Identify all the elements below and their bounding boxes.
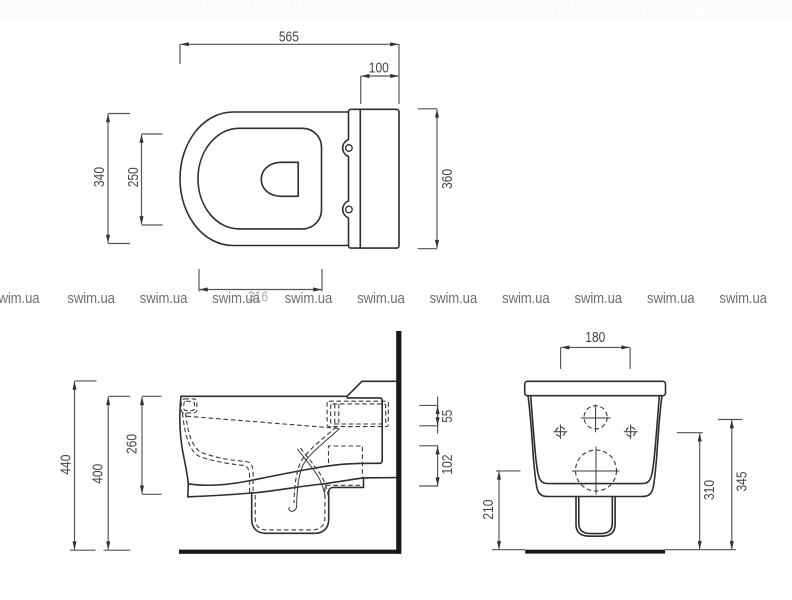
svg-text:swim.ua: swim.ua: [212, 291, 260, 307]
svg-text:565: 565: [279, 29, 299, 45]
svg-text:swim.ua: swim.ua: [575, 291, 623, 307]
svg-text:340: 340: [92, 167, 108, 187]
svg-text:102: 102: [440, 455, 456, 475]
svg-text:swim.ua: swim.ua: [67, 291, 115, 307]
svg-text:260: 260: [124, 434, 140, 454]
svg-text:345: 345: [734, 472, 750, 492]
svg-text:swim.ua: swim.ua: [0, 291, 40, 307]
svg-text:310: 310: [702, 480, 718, 500]
svg-text:swim.ua: swim.ua: [357, 291, 405, 307]
svg-text:swim.ua: swim.ua: [502, 291, 550, 307]
svg-text:55: 55: [440, 410, 456, 423]
svg-text:440: 440: [59, 455, 75, 475]
svg-text:400: 400: [90, 464, 106, 484]
svg-text:100: 100: [369, 61, 389, 77]
svg-text:180: 180: [585, 330, 605, 346]
svg-text:swim.ua: swim.ua: [719, 291, 767, 307]
svg-text:swim.ua: swim.ua: [285, 291, 333, 307]
svg-text:swim.ua: swim.ua: [647, 291, 695, 307]
svg-text:360: 360: [440, 169, 456, 189]
svg-text:swim.ua: swim.ua: [140, 291, 188, 307]
svg-text:210: 210: [481, 500, 497, 520]
svg-text:swim.ua: swim.ua: [430, 291, 478, 307]
svg-text:250: 250: [126, 167, 142, 187]
